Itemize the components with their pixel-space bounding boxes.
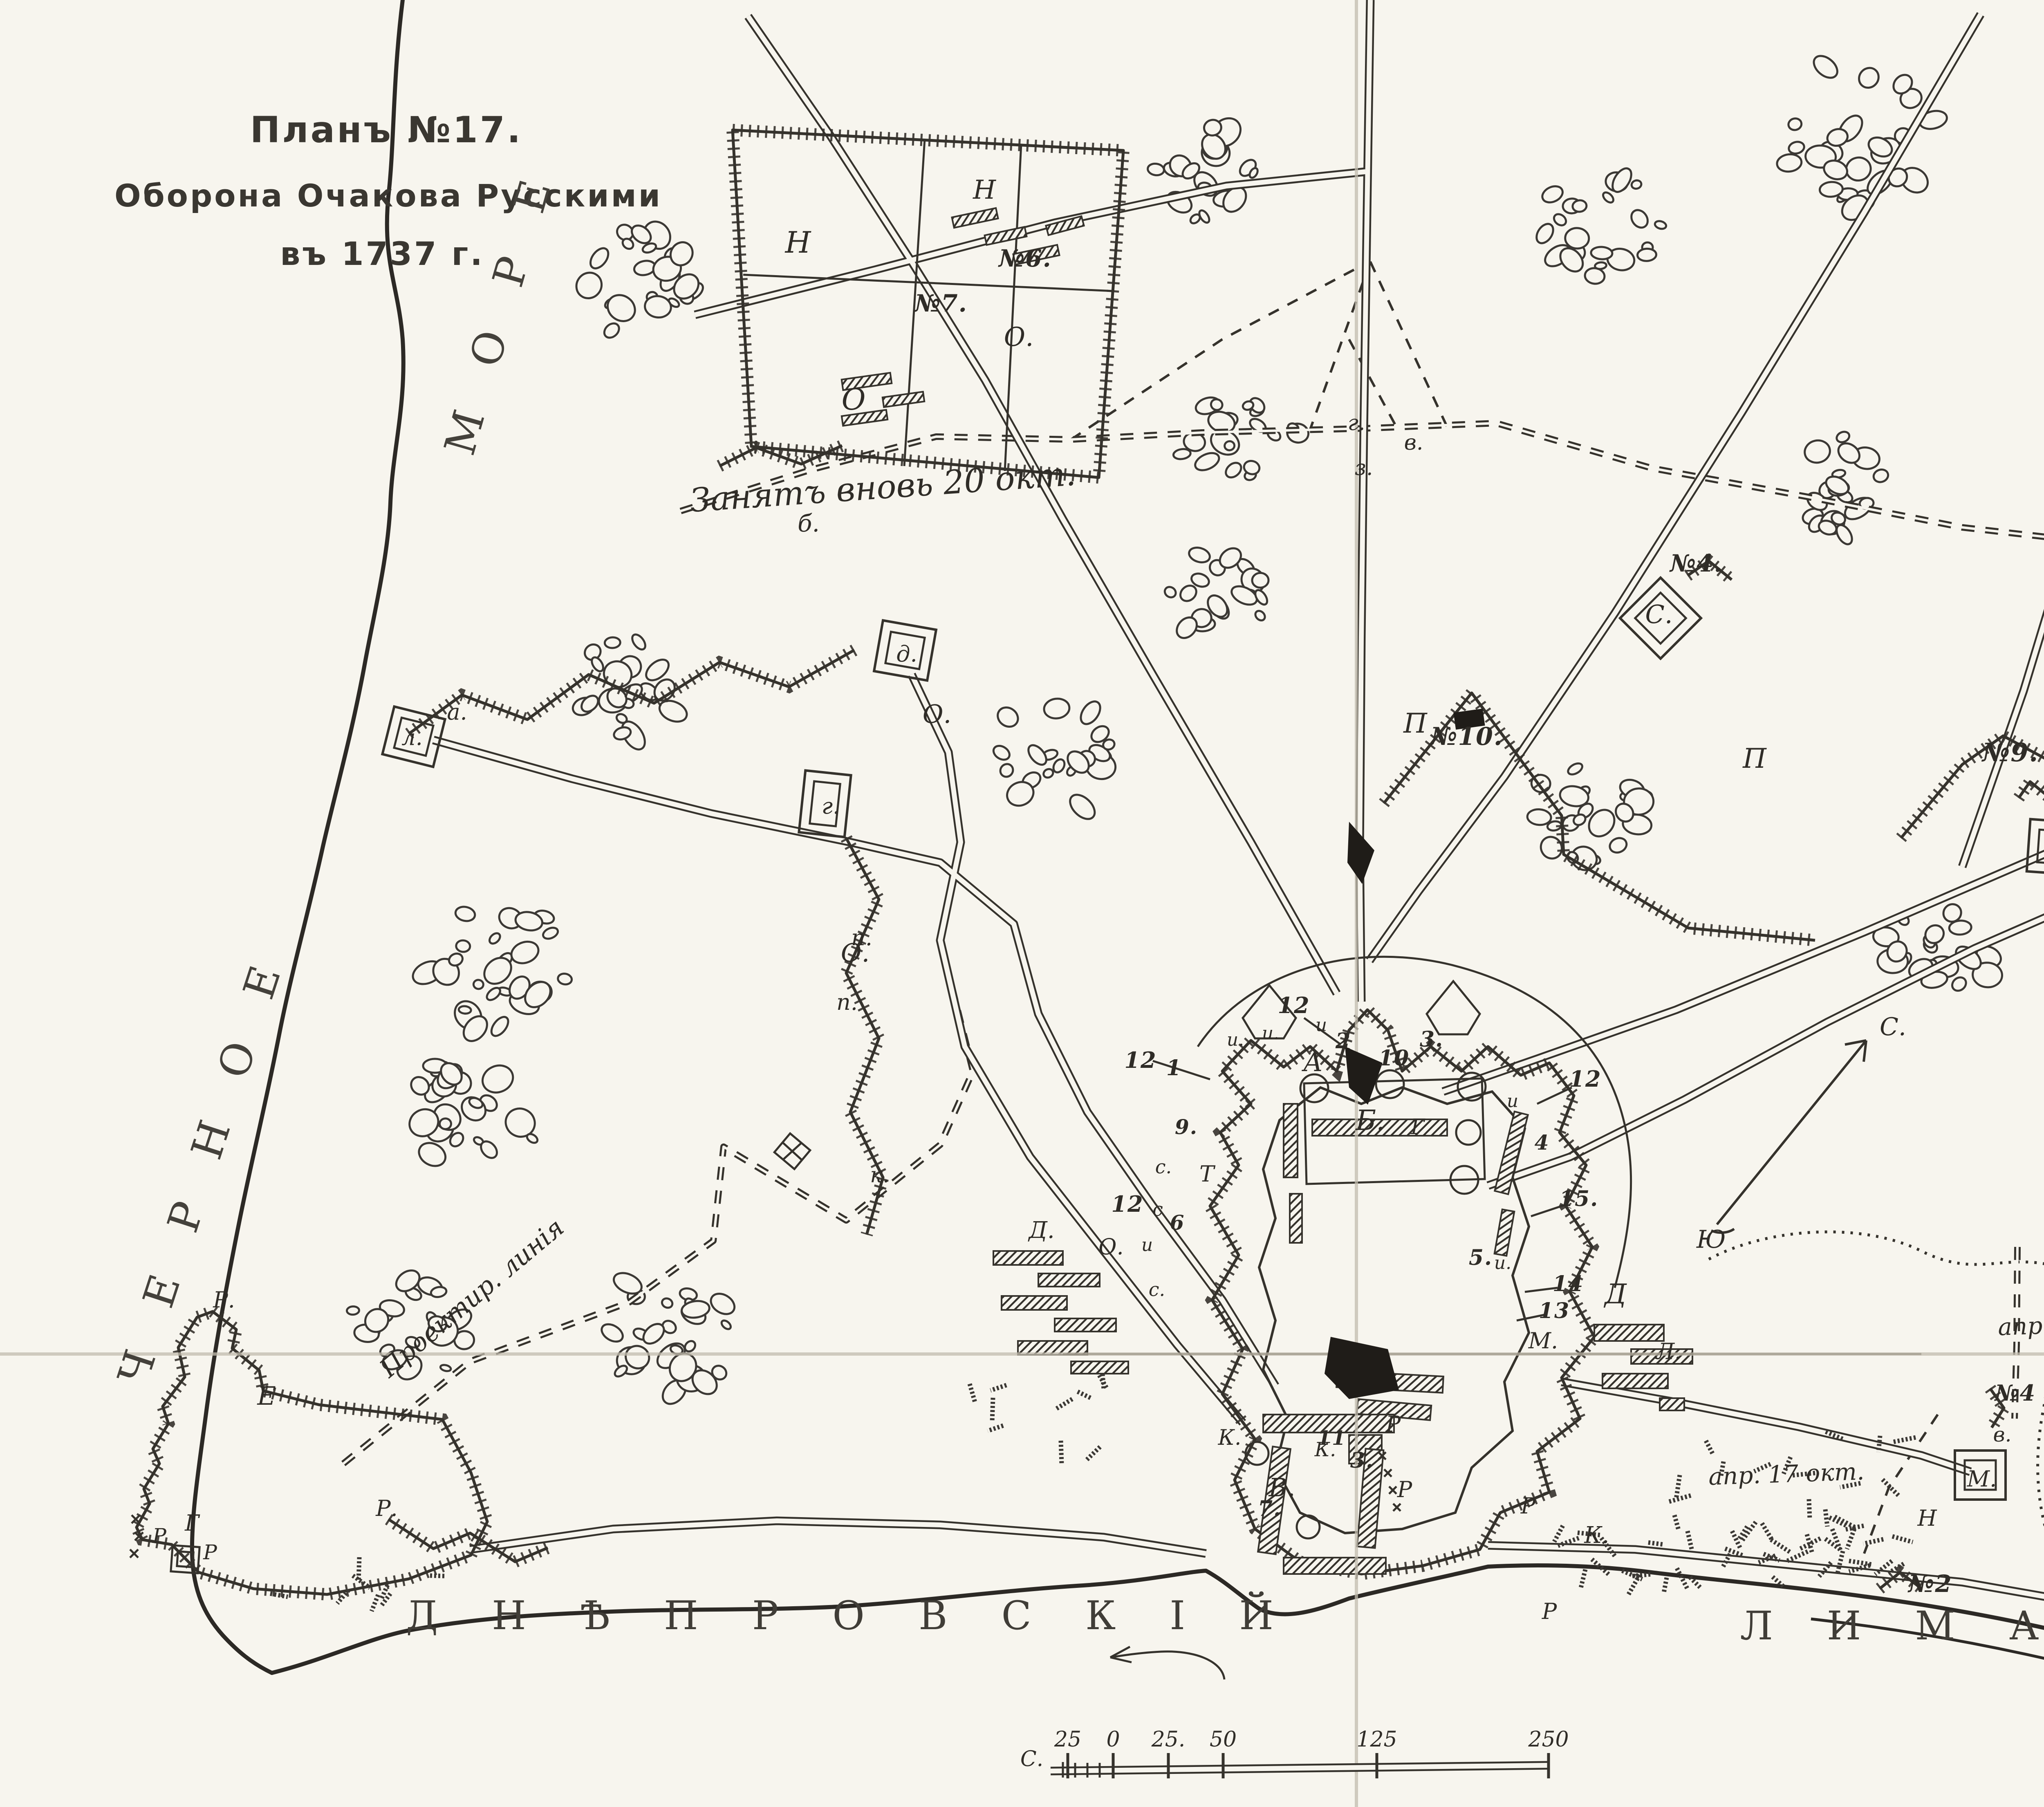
tree-blob xyxy=(1066,790,1099,824)
tree-blob xyxy=(1803,438,1832,465)
map-label: п. xyxy=(836,989,858,1015)
tree-blob xyxy=(1572,200,1587,213)
tree-blob xyxy=(557,973,573,986)
troop-tick xyxy=(1863,1539,1883,1544)
map-label: л. xyxy=(401,724,423,750)
tree-blob xyxy=(1654,220,1667,230)
troop-tick xyxy=(991,1385,1006,1390)
tree-blob xyxy=(1566,761,1584,777)
map-label: 3. xyxy=(1420,1027,1443,1052)
map-label: 13 xyxy=(1539,1298,1570,1323)
map-label: Г xyxy=(184,1510,200,1536)
map-label: Р xyxy=(1397,1477,1413,1502)
map-label: О. xyxy=(923,699,952,729)
map-label: О xyxy=(841,382,865,417)
map-label: Д xyxy=(1603,1278,1627,1310)
scale-bar: 25025.50125250 С. xyxy=(1020,1727,1569,1778)
road-via-zh-redoubt xyxy=(1488,812,2044,1186)
map-label: 10 xyxy=(1378,1046,1410,1071)
compass-north-label: С. xyxy=(1880,1013,1906,1041)
map-label: П xyxy=(1742,743,1767,774)
map-label: 12 xyxy=(1111,1191,1143,1217)
annotation-approaches-taken: апр. зан. 17окт. xyxy=(1997,1306,2044,1341)
map-label: 4 xyxy=(1535,1130,1550,1155)
tree-blob xyxy=(1187,545,1212,565)
tree-blob xyxy=(488,1014,511,1039)
current-arrow xyxy=(1110,1647,1224,1679)
ink-blot-3 xyxy=(1325,1337,1399,1399)
troop-tick xyxy=(1883,1480,1899,1496)
troop-tick xyxy=(1099,1375,1107,1388)
map-label: 6 xyxy=(1170,1211,1185,1235)
tree-blob xyxy=(1192,450,1221,474)
tree-blob xyxy=(1223,460,1244,480)
map-label: г. xyxy=(822,793,840,819)
troop-tick xyxy=(970,1384,975,1402)
liman-label-word2: ЛИМАНЪ xyxy=(1740,1603,2044,1649)
tree-blob xyxy=(1844,155,1873,183)
tree-blob xyxy=(1637,248,1657,261)
map-label: и xyxy=(1507,1091,1518,1112)
troop-tick xyxy=(1086,1447,1100,1461)
troop-tick xyxy=(1674,1515,1679,1530)
tree-blob xyxy=(1601,191,1615,204)
map-label: Р. xyxy=(375,1495,398,1521)
tree-blob xyxy=(415,1139,450,1170)
map-label: Н xyxy=(1917,1505,1937,1531)
map-label: №10. xyxy=(1430,722,1503,751)
map-label: 3. xyxy=(1350,1448,1374,1473)
troop-tick xyxy=(988,1426,1003,1431)
tree-blob xyxy=(1025,742,1050,768)
map-label: А xyxy=(1302,1047,1323,1078)
troop-tick xyxy=(1732,1531,1741,1549)
tree-blob xyxy=(998,762,1016,780)
troop-tick xyxy=(1892,1536,1913,1542)
annotation-projected-line: Проектир. линія xyxy=(374,1212,570,1383)
troop-tick xyxy=(1676,1475,1680,1499)
map-label: 9. xyxy=(1175,1115,1198,1139)
troop-tick xyxy=(1706,1441,1713,1455)
tree-blob xyxy=(440,1364,452,1372)
map-label: к. xyxy=(870,1163,890,1188)
map-page: НОН№6.№7.О.б.л.а.д.г.п.п.О.О.к.г.з.в.№4.… xyxy=(0,0,2044,1807)
tree-blob xyxy=(1564,227,1589,249)
feature-labels: НОН№6.№7.О.б.л.а.д.г.п.п.О.О.к.г.з.в.№4.… xyxy=(152,175,2044,1624)
tree-blob xyxy=(1077,698,1104,728)
troop-tick xyxy=(1103,1374,1104,1389)
troop-tick xyxy=(992,1398,993,1421)
battery-crossed xyxy=(774,1133,810,1169)
tree-blob xyxy=(1950,975,1969,993)
map-label: №2 xyxy=(1907,1570,1952,1598)
troop-tick xyxy=(1648,1542,1664,1545)
tree-blob xyxy=(1189,213,1201,225)
troop-tick xyxy=(1771,1540,1791,1553)
tree-blob xyxy=(720,1319,732,1331)
tree-blob xyxy=(1527,809,1552,826)
tree-blob xyxy=(1607,836,1629,855)
map-label: №4. xyxy=(1669,549,1723,577)
tree-blob xyxy=(587,245,612,271)
tree-blob xyxy=(991,743,1012,762)
tree-blob xyxy=(478,1061,517,1097)
tree-blob xyxy=(1872,468,1890,484)
troop-tick xyxy=(1893,1437,1916,1442)
tree-blob xyxy=(488,931,502,946)
tree-blob xyxy=(661,1297,674,1309)
map-label: в. xyxy=(1993,1423,2012,1446)
map-label: и xyxy=(1316,1015,1327,1036)
tree-blob xyxy=(1540,183,1565,206)
map-label: с. xyxy=(1149,1278,1165,1300)
map-label: О. xyxy=(1098,1234,1123,1260)
map-label: №9. xyxy=(1981,738,2039,767)
map-label: б. xyxy=(798,509,820,537)
north-arrow: С. Ю xyxy=(1696,1013,1906,1254)
tree-blob xyxy=(1163,585,1178,600)
map-label: а. xyxy=(447,699,467,725)
map-label: Т xyxy=(1199,1161,1216,1187)
road-from-d-redoubt xyxy=(912,675,1243,1423)
tree-blob xyxy=(1252,573,1269,588)
map-label: 12 xyxy=(1569,1066,1601,1092)
tree-blob xyxy=(1787,117,1802,131)
map-label: №6. xyxy=(998,244,1052,272)
map-label: Р xyxy=(1385,1411,1401,1437)
map-label: с. xyxy=(1155,1156,1172,1178)
tree-blob xyxy=(456,940,471,953)
tree-blob xyxy=(1819,181,1843,197)
ink-blot-2 xyxy=(1345,1047,1383,1105)
map-label: №4 xyxy=(1994,1380,2036,1406)
compass-south-label: Ю xyxy=(1696,1225,1726,1254)
tree-blob xyxy=(485,986,502,1002)
troop-tick xyxy=(372,1595,378,1611)
scale-tick-label: 25 xyxy=(1054,1727,1081,1752)
troop-tick xyxy=(1688,1531,1692,1551)
map-label: и xyxy=(1141,1235,1153,1255)
tree-blob xyxy=(1855,64,1883,92)
tree-blob xyxy=(571,268,607,303)
map-label: М. xyxy=(1528,1328,1558,1354)
map-label: Е xyxy=(257,1381,276,1411)
map-label: 12 xyxy=(1124,1047,1156,1073)
map-label: и. xyxy=(1227,1029,1244,1050)
map-label: Г xyxy=(1410,1115,1425,1139)
tree-blob xyxy=(347,1306,359,1315)
troop-tick xyxy=(1809,1499,1810,1519)
troop-tick xyxy=(382,1594,390,1605)
troop-tick xyxy=(359,1557,359,1581)
redoubts xyxy=(382,561,2044,1589)
tree-blob xyxy=(601,321,622,341)
map-canvas: НОН№6.№7.О.б.л.а.д.г.п.п.О.О.к.г.з.в.№4.… xyxy=(0,0,2044,1807)
map-label: Р xyxy=(1520,1493,1536,1519)
tree-blob xyxy=(1147,163,1165,176)
tree-blob xyxy=(630,632,648,652)
scale-tick-label: 125 xyxy=(1356,1727,1397,1752)
black-sea-label-word1: ЧЕРНОЕ xyxy=(108,914,305,1391)
title-line-3: въ 1737 г. xyxy=(280,236,484,273)
map-label: Н xyxy=(784,225,811,260)
map-label: П xyxy=(1403,708,1428,739)
troop-tick xyxy=(1061,1441,1062,1464)
tree-clusters xyxy=(347,52,2044,1408)
troop-tick xyxy=(1581,1569,1585,1588)
annotations: Занятъ вновь 20 окт. Проектир. линія апр… xyxy=(374,455,2044,1491)
tree-blob xyxy=(458,1006,471,1014)
map-label: и. xyxy=(1262,1023,1279,1044)
scale-tick-label: 250 xyxy=(1528,1727,1569,1752)
map-label: О. xyxy=(841,938,870,968)
tree-blob xyxy=(603,290,640,327)
troop-tick xyxy=(1664,1578,1667,1593)
tree-blob xyxy=(1631,179,1643,190)
tree-blob xyxy=(994,704,1022,731)
tree-blob xyxy=(1595,262,1607,269)
scale-prefix: С. xyxy=(1020,1747,1043,1771)
map-label: С. xyxy=(1645,599,1672,629)
tree-blob xyxy=(1043,697,1070,720)
map-label: 1 xyxy=(1166,1056,1182,1081)
tree-blob xyxy=(1591,247,1612,260)
map-label: 2 xyxy=(1335,1029,1351,1054)
title-line-1: Планъ №17. xyxy=(250,109,523,151)
map-label: К. xyxy=(1218,1426,1242,1450)
map-label: К. xyxy=(1584,1522,1609,1549)
tree-blob xyxy=(1253,609,1267,623)
tree-blob xyxy=(707,1289,738,1318)
tree-blob xyxy=(439,1119,451,1129)
troop-tick xyxy=(1078,1392,1091,1398)
tree-blob xyxy=(605,637,621,648)
troop-tick xyxy=(1669,1495,1691,1502)
annotation-approaches-17oct: апр. 17 окт. xyxy=(1708,1457,1865,1491)
map-label: в. xyxy=(1404,430,1423,455)
tree-blob xyxy=(1533,221,1556,246)
tree-blob xyxy=(613,1363,629,1379)
map-label: Р xyxy=(1542,1598,1558,1624)
map-label: М. xyxy=(1967,1466,1997,1492)
map-label: г. xyxy=(1348,411,1365,435)
tree-blob xyxy=(1776,153,1803,173)
troop-tick xyxy=(1807,1534,1812,1553)
road-core xyxy=(1488,812,2044,1186)
tree-blob xyxy=(1628,207,1651,231)
tree-blob xyxy=(454,905,476,923)
map-label: д. xyxy=(896,641,917,667)
title-line-2: Оборона Очакова Русскими xyxy=(114,177,662,214)
troop-tick xyxy=(1056,1399,1072,1409)
troop-tick xyxy=(430,1576,445,1576)
annotation-reoccupied: Занятъ вновь 20 окт. xyxy=(689,455,1077,520)
scale-tick-label: 50 xyxy=(1210,1727,1237,1752)
map-label: 12 xyxy=(1277,992,1310,1018)
tree-blob xyxy=(473,979,484,989)
troop-tick xyxy=(1847,1529,1854,1549)
map-label: с xyxy=(1152,1198,1163,1220)
tree-blob xyxy=(541,926,559,941)
map-label: 7. xyxy=(1258,1496,1282,1521)
ravelin-2 xyxy=(1427,981,1480,1034)
tree-blob xyxy=(1835,430,1851,444)
map-label: Б. xyxy=(1355,1105,1385,1137)
troop-tick xyxy=(1829,1518,1847,1526)
tree-blob xyxy=(1224,441,1235,451)
map-title: Планъ №17. Оборона Очакова Русскими въ 1… xyxy=(114,109,662,273)
tree-blob xyxy=(1173,448,1191,460)
map-label: з. xyxy=(1355,456,1373,480)
tree-blob xyxy=(508,938,541,967)
map-label: Л. xyxy=(1655,1338,1681,1364)
map-label: 5. xyxy=(1469,1245,1493,1270)
map-label: №7. xyxy=(914,289,968,317)
tree-blob xyxy=(1810,52,1842,82)
map-label: О. xyxy=(1004,322,1034,352)
map-label: 15. xyxy=(1559,1186,1598,1211)
scale-tick-label: 25. xyxy=(1151,1727,1186,1752)
map-label: Д. xyxy=(1027,1217,1054,1244)
tree-blob xyxy=(525,1132,539,1144)
troop-tick xyxy=(1762,1523,1772,1540)
map-label: и. xyxy=(1494,1253,1511,1273)
fortress-inner-enceinte xyxy=(1259,1087,1529,1533)
troop-tick xyxy=(1787,1551,1808,1561)
liman-label-word1: ДНѢПРОВСКІЙ xyxy=(406,1592,1327,1639)
troop-tick xyxy=(1554,1526,1563,1542)
map-label: Р. xyxy=(213,1287,235,1313)
tree-blob xyxy=(598,1321,626,1345)
troop-tick xyxy=(1825,1509,1827,1527)
map-label: Р xyxy=(152,1524,167,1548)
tree-blob xyxy=(1788,140,1806,155)
map-label: Н xyxy=(973,175,996,205)
contour-west-of-camp xyxy=(1709,1232,2044,1267)
map-label: 14 xyxy=(1553,1271,1584,1296)
map-label: Р xyxy=(203,1540,217,1564)
map-label: К. xyxy=(1314,1438,1336,1461)
scale-tick-label: 0 xyxy=(1106,1727,1120,1752)
tree-blob xyxy=(1552,212,1568,228)
